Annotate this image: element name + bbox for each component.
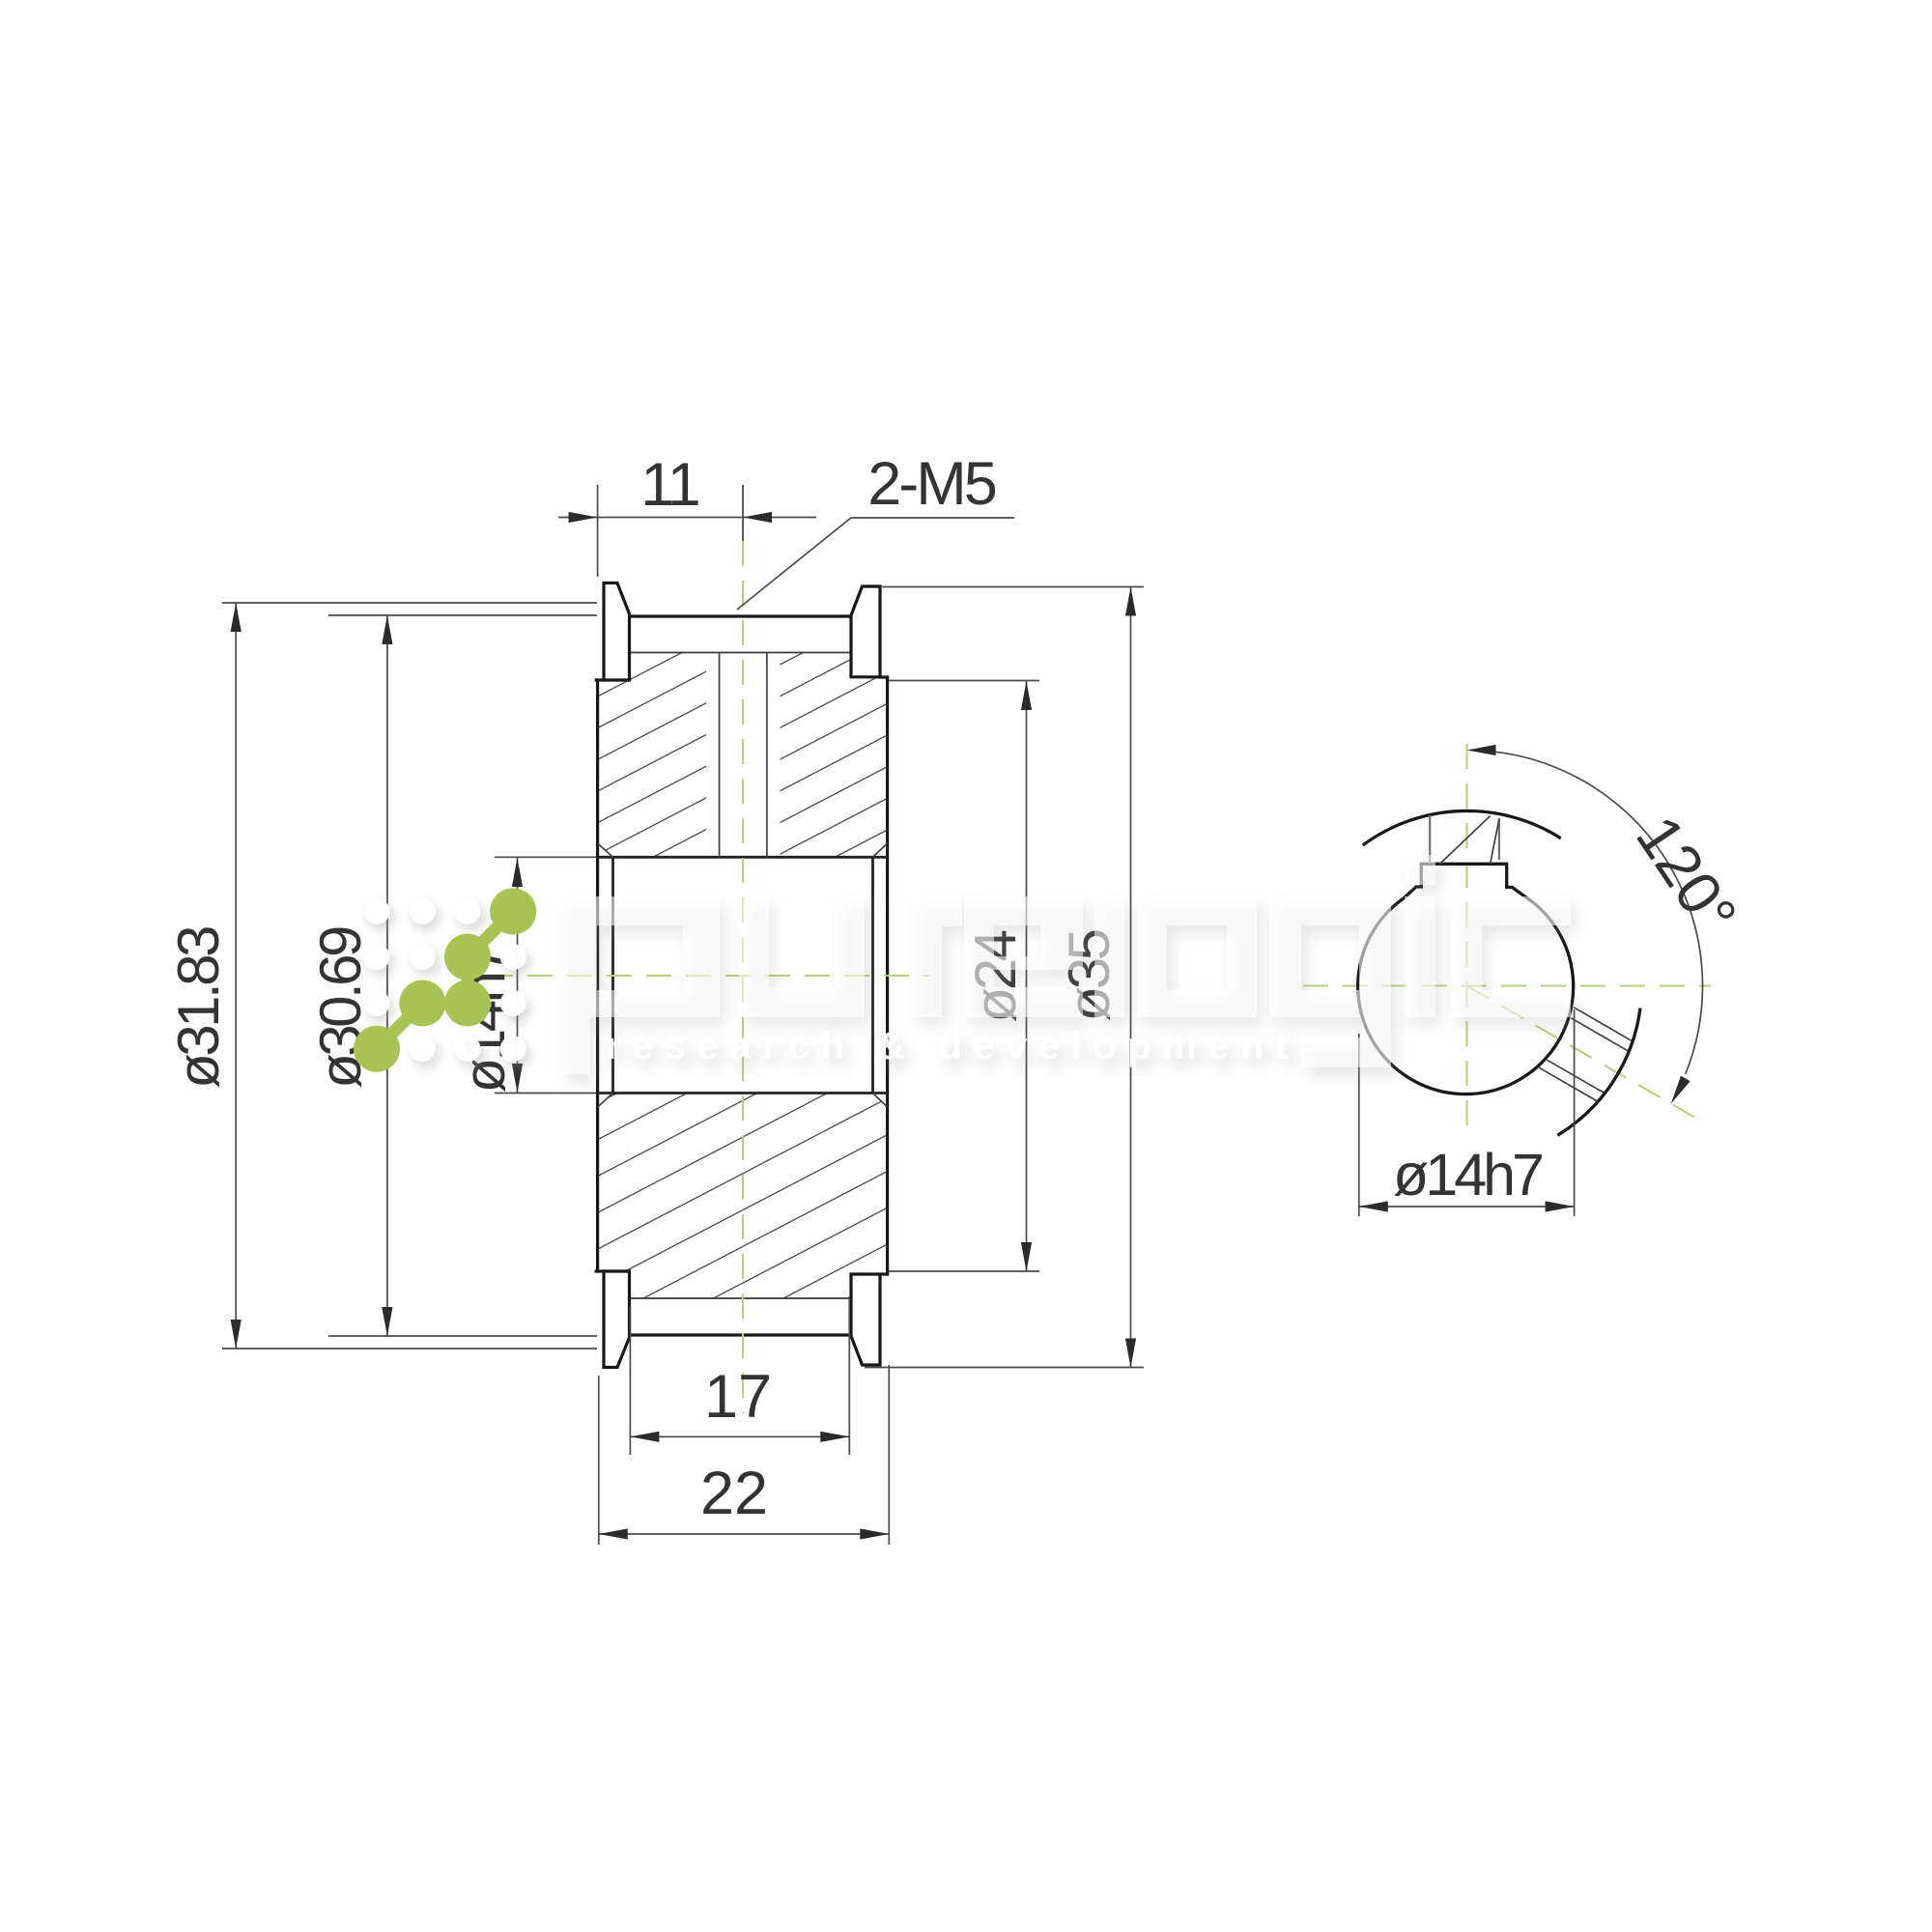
svg-text:17: 17: [704, 1363, 772, 1431]
svg-text:ø14h7: ø14h7: [1393, 1142, 1542, 1207]
svg-text:11: 11: [640, 451, 697, 519]
svg-text:2-M5: 2-M5: [867, 450, 995, 518]
svg-text:22: 22: [700, 1460, 768, 1527]
svg-text:research & development: research & development: [606, 1025, 1299, 1067]
svg-text:ø31.83: ø31.83: [166, 927, 231, 1089]
